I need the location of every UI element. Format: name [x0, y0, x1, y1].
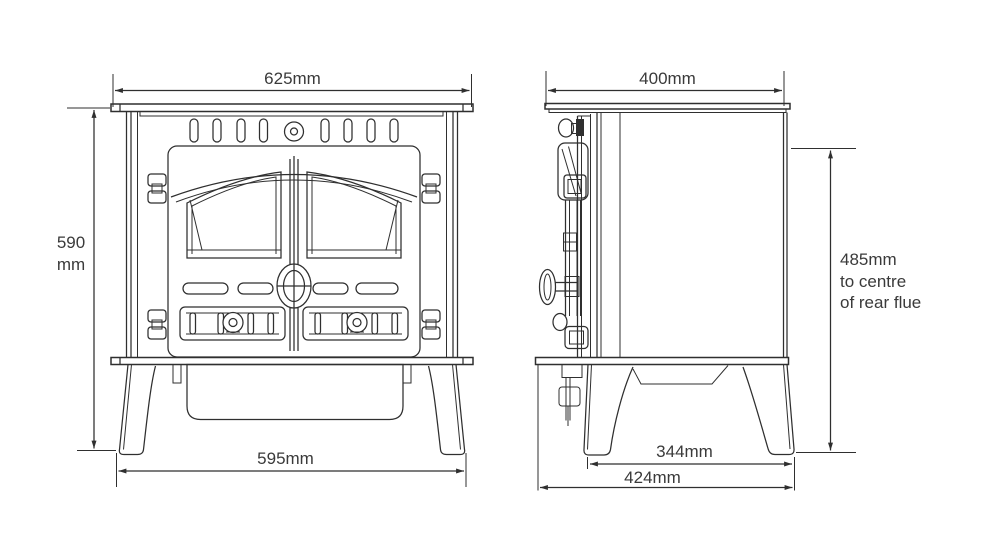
side-top-plate — [545, 104, 790, 113]
front-left-air-control-panel — [180, 307, 285, 340]
front-top-plate — [111, 104, 473, 116]
label-side-flue-height-value: 485mm — [840, 249, 970, 271]
label-side-flue-height: 485mm to centre of rear flue — [840, 249, 970, 314]
label-side-top-depth: 400mm — [617, 68, 718, 90]
label-front-base-width: 595mm — [235, 448, 336, 470]
side-bottom-plate — [536, 358, 789, 365]
label-side-flue-height-note-line1: to centre — [840, 271, 970, 293]
front-right-door-window — [307, 172, 401, 258]
label-side-base-between-legs: 344mm — [634, 441, 735, 463]
hinge-top-right — [422, 174, 440, 203]
hinge-bottom-right — [422, 310, 440, 339]
stove-dimension-diagram: 625mm 590 mm 595mm 400mm 485mm to centre… — [0, 0, 981, 552]
front-left-door-window — [187, 172, 281, 258]
stove-front-view-drawing — [111, 104, 473, 455]
label-front-height: 590 mm — [45, 232, 97, 276]
front-door-handle — [277, 264, 311, 308]
front-ash-pan-drawer — [173, 365, 411, 420]
front-legs — [119, 365, 464, 455]
side-top-hinge — [558, 143, 588, 200]
side-door-handle — [540, 270, 580, 305]
side-ash-pan-profile — [633, 366, 728, 385]
label-side-flue-height-note-line2: of rear flue — [840, 292, 970, 314]
front-bottom-plate — [111, 358, 473, 365]
hinge-bottom-left — [148, 310, 166, 339]
stove-side-view-drawing — [536, 104, 795, 456]
label-side-base-overall: 424mm — [602, 467, 703, 489]
hinge-top-left — [148, 174, 166, 203]
label-front-height-value: 590 — [45, 232, 97, 254]
front-air-vent-slots — [190, 119, 398, 142]
side-body — [597, 113, 787, 358]
side-lower-latch — [559, 365, 582, 427]
front-door-mullion — [290, 156, 298, 351]
stove-line-drawing — [0, 0, 981, 552]
side-bottom-hinge — [553, 314, 588, 349]
label-front-top-width: 625mm — [242, 68, 343, 90]
front-right-air-control-panel — [303, 307, 408, 340]
dim-front-height — [67, 108, 116, 451]
label-front-height-unit: mm — [45, 254, 97, 276]
side-air-control-knob — [559, 119, 585, 137]
